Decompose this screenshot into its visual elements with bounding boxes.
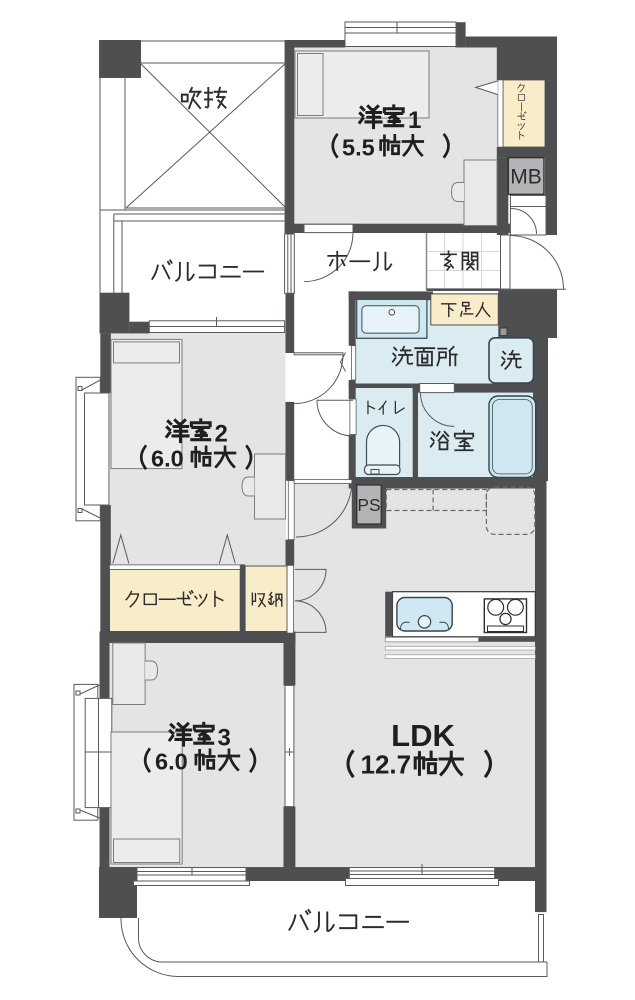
svg-text:5.5: 5.5 [342,135,375,161]
svg-text:3: 3 [218,725,231,752]
svg-text:1: 1 [408,107,421,134]
svg-text:6.0: 6.0 [155,749,188,775]
svg-text:6.0: 6.0 [151,446,184,472]
svg-text:MB: MB [510,166,542,189]
svg-text:12.7: 12.7 [361,750,412,780]
svg-text:PS: PS [357,495,380,515]
svg-text:LDK: LDK [391,718,455,753]
svg-text:2: 2 [215,421,228,448]
